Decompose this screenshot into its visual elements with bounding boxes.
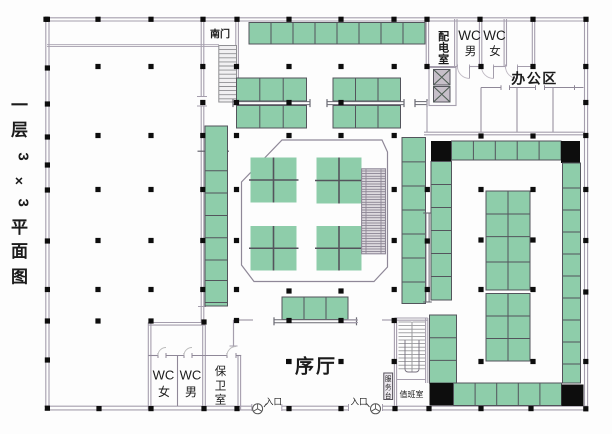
svg-text:层: 层 bbox=[11, 121, 28, 140]
svg-text:×: × bbox=[15, 173, 23, 189]
svg-text:面: 面 bbox=[11, 242, 28, 261]
svg-text:入口: 入口 bbox=[265, 397, 282, 407]
svg-text:服: 服 bbox=[385, 375, 392, 383]
svg-text:配: 配 bbox=[438, 29, 449, 43]
svg-text:电: 电 bbox=[438, 41, 449, 55]
svg-text:WC: WC bbox=[180, 368, 202, 383]
svg-text:女: 女 bbox=[489, 44, 501, 58]
svg-text:南门: 南门 bbox=[210, 28, 230, 41]
svg-text:WC: WC bbox=[458, 28, 481, 43]
svg-text:保: 保 bbox=[215, 364, 227, 378]
svg-text:台: 台 bbox=[385, 391, 392, 400]
svg-text:卫: 卫 bbox=[215, 381, 227, 393]
svg-text:务: 务 bbox=[385, 383, 392, 392]
svg-text:3: 3 bbox=[15, 199, 32, 207]
svg-text:WC: WC bbox=[483, 28, 506, 43]
svg-text:入口: 入口 bbox=[350, 397, 367, 407]
svg-text:室: 室 bbox=[215, 393, 227, 407]
svg-text:室: 室 bbox=[438, 52, 449, 66]
svg-text:值班室: 值班室 bbox=[400, 389, 424, 399]
svg-text:男: 男 bbox=[465, 46, 477, 58]
svg-text:男: 男 bbox=[185, 385, 197, 399]
svg-text:平: 平 bbox=[11, 218, 28, 237]
svg-text:一: 一 bbox=[11, 96, 28, 115]
svg-text:3: 3 bbox=[15, 152, 32, 160]
svg-text:WC: WC bbox=[153, 368, 175, 383]
svg-text:图: 图 bbox=[11, 268, 28, 287]
svg-text:办公区: 办公区 bbox=[511, 71, 558, 87]
svg-text:序厅: 序厅 bbox=[295, 355, 337, 378]
svg-text:女: 女 bbox=[158, 384, 170, 399]
